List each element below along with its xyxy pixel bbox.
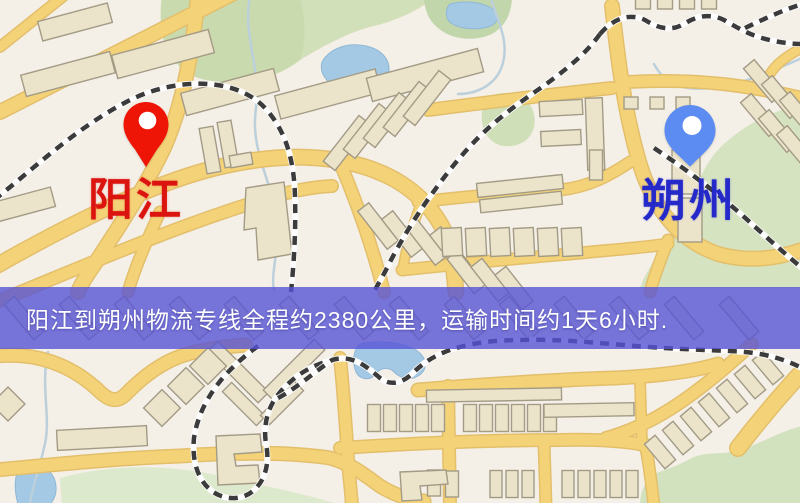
origin-pin-icon[interactable] [121,101,171,171]
destination-pin-icon[interactable] [662,104,718,168]
route-info-banner: 阳江到朔州物流专线全程约2380公里，运输时间约1天6小时. [0,287,800,349]
destination-city-label: 朔州 [641,179,737,224]
map-view[interactable]: 阳江到朔州物流专线全程约2380公里，运输时间约1天6小时. 阳江 朔州 [0,0,800,503]
destination-pin-shape [665,105,716,167]
origin-pin-hole [139,112,157,130]
map-canvas [0,0,800,503]
origin-city-label: 阳江 [88,178,184,223]
route-info-text: 阳江到朔州物流专线全程约2380公里，运输时间约1天6小时. [0,301,668,335]
destination-pin-hole [683,116,702,135]
origin-pin-shape [124,102,169,167]
